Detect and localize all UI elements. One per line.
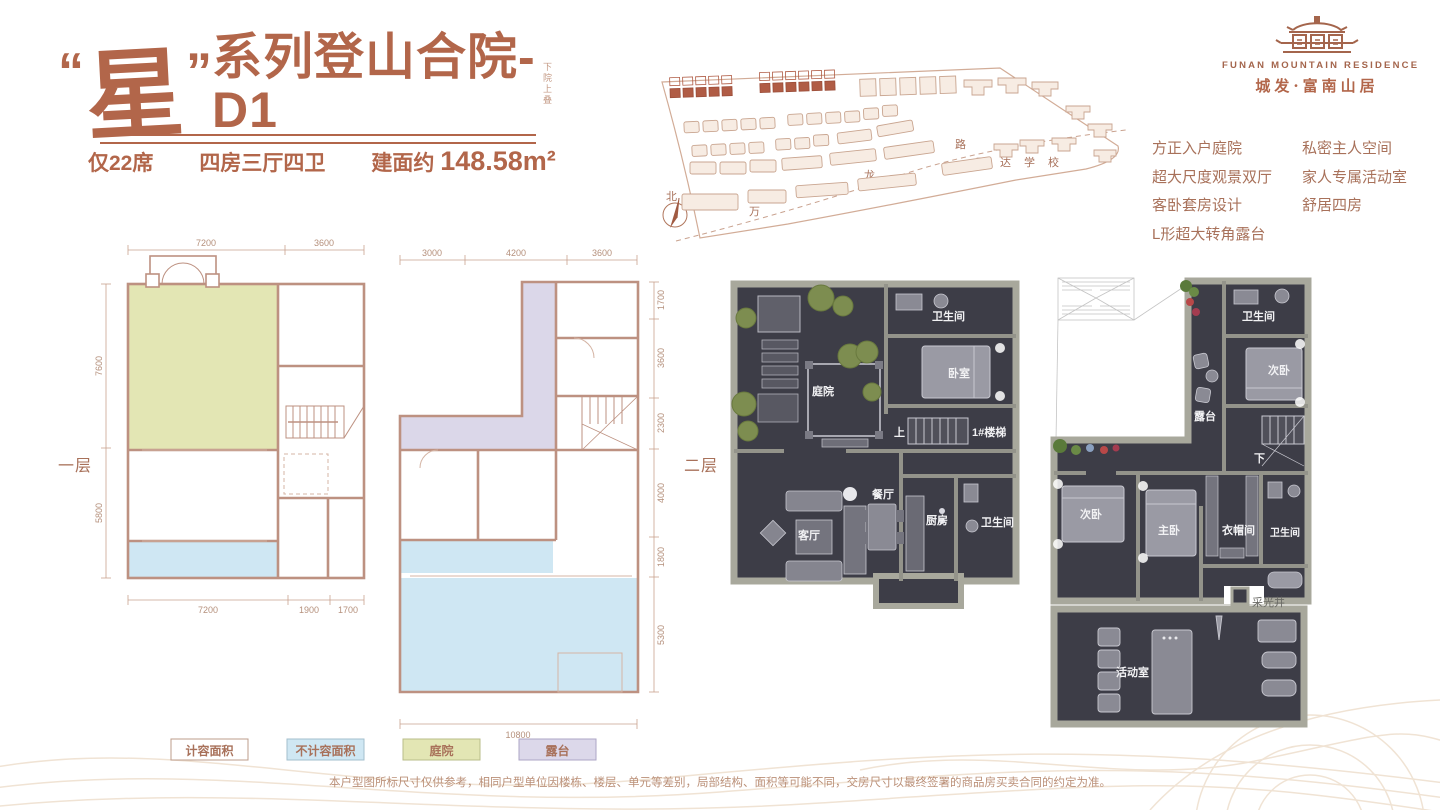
render2-bath-right-label: 卫生间 bbox=[1270, 526, 1300, 539]
floor2-dim: 2300 bbox=[656, 413, 666, 433]
floor2-dim: 1700 bbox=[656, 290, 666, 310]
floor1-courtyard-area bbox=[128, 284, 278, 450]
floor2-dim: 3000 bbox=[422, 248, 442, 258]
render2-lightwell-label: 采光井 bbox=[1252, 595, 1285, 609]
render2-lightwell-shaft bbox=[1232, 588, 1248, 604]
pavilion-logo-icon bbox=[1273, 16, 1361, 58]
render1-living-label: 客厅 bbox=[797, 528, 820, 542]
floor1-stairs bbox=[286, 406, 364, 438]
legend-item-counted: 计容面积 bbox=[170, 738, 249, 761]
road-char-wan: 万 bbox=[749, 206, 760, 218]
legend-item-uncounted: 不计容面积 bbox=[286, 738, 365, 761]
legend-item-terrace: 露台 bbox=[518, 738, 597, 761]
title-divider bbox=[100, 134, 536, 144]
render2-bed-left-label: 次卧 bbox=[1080, 507, 1102, 521]
site-highlighted-buildings bbox=[670, 70, 836, 98]
render1-dining-label: 餐厅 bbox=[871, 487, 894, 501]
floor1-dim: 3600 bbox=[314, 238, 334, 248]
floor2-dim: 3600 bbox=[656, 348, 666, 368]
render1-porch bbox=[876, 576, 961, 606]
svg-text:北: 北 bbox=[666, 190, 677, 203]
logo-name-cn: 城发·富南山居 bbox=[1222, 75, 1412, 96]
render2-stairs-down-label: 下 bbox=[1254, 452, 1265, 465]
floor2-dim: 4200 bbox=[506, 248, 526, 258]
render2-closet-label: 衣帽间 bbox=[1222, 523, 1255, 537]
render2-roof-sketch bbox=[1056, 278, 1188, 440]
title-side-note: 下院上叠 bbox=[541, 62, 554, 106]
floor2-label: 二层 bbox=[684, 452, 718, 476]
floor1-windows bbox=[142, 450, 328, 541]
floor2-dim: 5300 bbox=[656, 625, 666, 645]
unit-stats: 仅22席 四房三厅四卫 建面约 148.58m² bbox=[88, 146, 556, 177]
floor2-plan: 3000 4200 3600 1700 3600 2300 4000 1800 … bbox=[382, 246, 682, 751]
render2-activity-label: 活动室 bbox=[1116, 665, 1149, 679]
stat-seats: 仅22席 bbox=[88, 147, 153, 177]
logo-name-en: FUNAN MOUNTAIN RESIDENCE bbox=[1222, 60, 1412, 71]
stat-layout: 四房三厅四卫 bbox=[199, 147, 325, 177]
render-floor2: 卫生间 次卧 露台 下 次卧 主卧 衣帽间 卫生间 采光井 活动室 bbox=[1046, 276, 1316, 751]
floor1-dim: 1900 bbox=[299, 605, 319, 615]
floor1-entry bbox=[146, 256, 219, 287]
floor2-terrace-area bbox=[400, 282, 556, 450]
page-title: “ 星 ” 系列登山合院-D1 bbox=[58, 28, 598, 140]
series-character: 星 bbox=[84, 49, 186, 142]
feature-column-2: 私密主人空间 家人专属活动室 舒居四房 bbox=[1302, 135, 1407, 249]
render-floor1: 庭院 卫生间 卧室 上 1#楼梯 客厅 餐厅 厨房 卫生间 bbox=[726, 276, 1026, 616]
floor2-uncounted-area-1 bbox=[400, 540, 553, 573]
feature-list: 方正入户庭院 超大尺度观景双厅 客卧套房设计 L形超大转角露台 私密主人空间 家… bbox=[1152, 135, 1407, 249]
floor1-dim: 1700 bbox=[338, 605, 358, 615]
floor1-dim: 7200 bbox=[196, 238, 216, 248]
floor2-stairs bbox=[582, 396, 638, 450]
legend-item-courtyard: 庭院 bbox=[402, 738, 481, 761]
quote-open: “ bbox=[58, 46, 84, 98]
feature-column-1: 方正入户庭院 超大尺度观景双厅 客卧套房设计 L形超大转角露台 bbox=[1152, 135, 1272, 249]
floor1-uncounted-area bbox=[128, 541, 278, 578]
floor1-dim: 7600 bbox=[94, 356, 104, 376]
render2-terrace-label: 露台 bbox=[1194, 409, 1216, 423]
floor2-dim: 4000 bbox=[656, 483, 666, 503]
render1-stairs-name-label: 1#楼梯 bbox=[972, 425, 1006, 439]
render2-master-label: 主卧 bbox=[1158, 523, 1180, 537]
stat-area: 建面约 148.58m² bbox=[371, 146, 555, 177]
floor1-label: 一层 bbox=[58, 452, 92, 476]
render2-bath-top-label: 卫生间 bbox=[1242, 309, 1275, 323]
render1-bedroom-label: 卧室 bbox=[948, 366, 970, 380]
floor1-dim: 7200 bbox=[198, 605, 218, 615]
floor2-dim: 3600 bbox=[592, 248, 612, 258]
floor2-uncounted-area-2 bbox=[400, 578, 637, 692]
brand-logo: FUNAN MOUNTAIN RESIDENCE 城发·富南山居 bbox=[1222, 16, 1412, 96]
render2-bed-top-label: 次卧 bbox=[1268, 363, 1290, 377]
road-char-lu: 路 bbox=[955, 138, 966, 151]
site-map: 万 龙 路 万达学校 北 bbox=[648, 48, 1138, 243]
disclaimer-text: 本户型图所标尺寸仅供参考，相同户型单位因楼栋、楼层、单元等差别，局部结构、面积等… bbox=[0, 774, 1440, 790]
quote-close: ” bbox=[186, 46, 212, 98]
render1-bath-bottom-label: 卫生间 bbox=[981, 515, 1014, 529]
legend: 计容面积 不计容面积 庭院 露台 bbox=[170, 738, 597, 761]
site-buildings bbox=[682, 76, 1116, 210]
render1-courtyard-label: 庭院 bbox=[812, 384, 834, 398]
floor1-dim: 5800 bbox=[94, 503, 104, 523]
floor1-plan: 7200 3600 7600 5800 7200 1900 1700 bbox=[92, 236, 387, 626]
render1-stairs-up-label: 上 bbox=[894, 425, 905, 439]
floor2-dim: 1800 bbox=[656, 547, 666, 567]
render1-bath-top-label: 卫生间 bbox=[932, 309, 965, 323]
render1-kitchen-label: 厨房 bbox=[926, 513, 948, 527]
